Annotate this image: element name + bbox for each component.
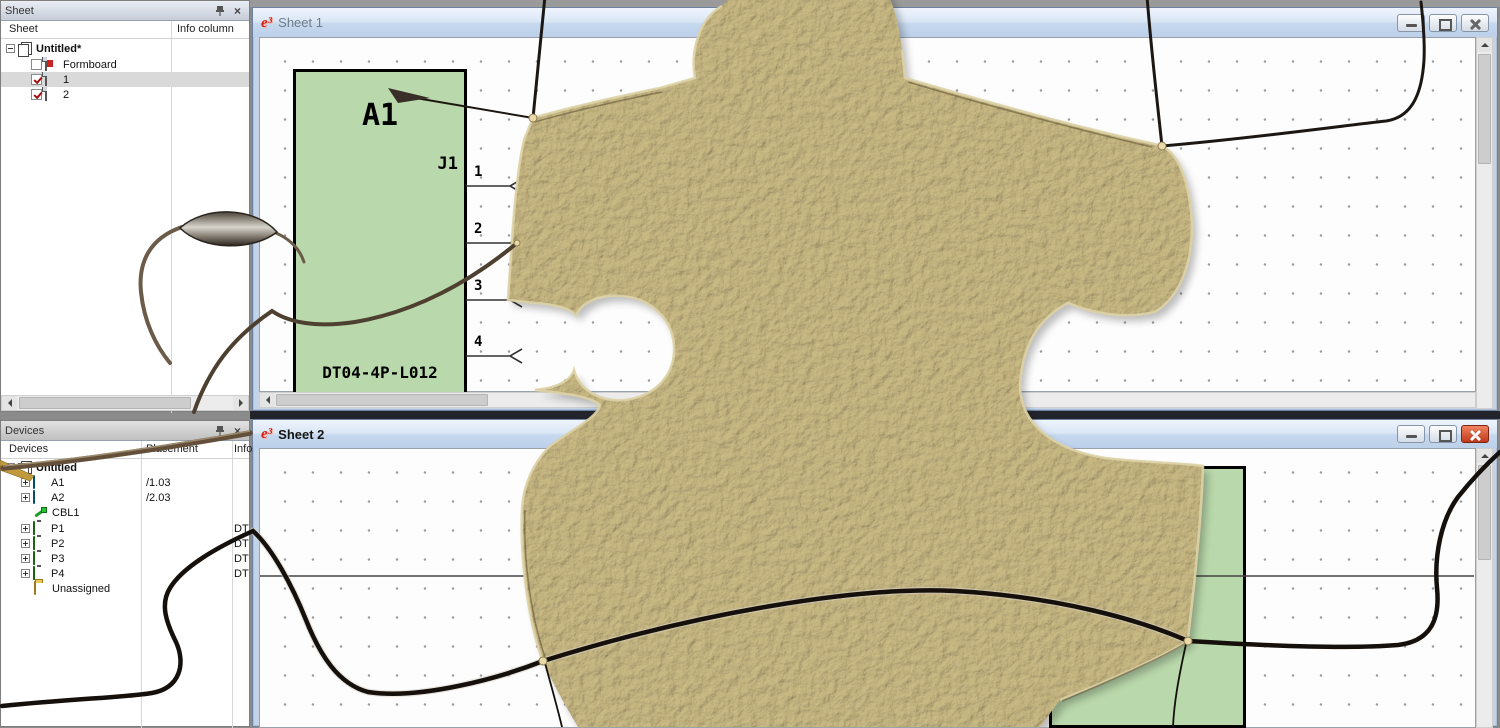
sheet1-hscrollbar[interactable]: [259, 392, 1476, 408]
info-value: DT: [234, 538, 249, 550]
close-icon[interactable]: ×: [230, 424, 245, 437]
app-logo-icon: e³: [261, 17, 272, 29]
tree-item-cable-cbl1[interactable]: CBL1: [1, 505, 249, 520]
sheet2-window[interactable]: e³ Sheet 2 2 3: [252, 419, 1498, 727]
minimize-button[interactable]: [1397, 425, 1425, 443]
sheet1-window[interactable]: e³ Sheet 1 A1 J1 DT04-4P-L012 1 2 3 4: [252, 7, 1498, 411]
pin-number: 2: [474, 221, 482, 237]
sheet-panel-hscrollbar[interactable]: [1, 395, 249, 411]
pin-icon[interactable]: [212, 424, 227, 437]
schematic-block-right[interactable]: [1049, 466, 1246, 728]
sheet1-title: Sheet 1: [278, 15, 323, 30]
restore-button[interactable]: [1429, 14, 1457, 32]
connector-icon: [33, 521, 35, 535]
close-icon[interactable]: ×: [230, 4, 245, 17]
tree-root-untitled[interactable]: Untitled*: [1, 41, 249, 56]
close-button[interactable]: [1461, 425, 1489, 443]
tree-root-untitled[interactable]: Untitled: [1, 460, 249, 475]
device-icon: [33, 490, 35, 504]
folder-label: Unassigned: [52, 583, 110, 595]
tree-item-formboard[interactable]: Formboard: [1, 57, 249, 72]
collapse-icon[interactable]: [6, 44, 15, 53]
connector-label: P2: [51, 538, 64, 550]
tree-item-label: Formboard: [63, 59, 117, 71]
expand-icon[interactable]: [21, 524, 30, 533]
devices-panel-titlebar: Devices ×: [1, 421, 249, 441]
tree-root-label: Untitled*: [36, 43, 81, 55]
pin-number: 3: [474, 278, 482, 294]
column-header[interactable]: Sheet: [9, 23, 38, 35]
info-value: DT: [234, 523, 249, 535]
block-designator: A1: [296, 98, 464, 133]
scroll-thumb[interactable]: [19, 397, 191, 409]
sheet2-canvas[interactable]: [259, 448, 1476, 728]
checkbox-checked[interactable]: [31, 89, 42, 100]
formboard-page-icon: [45, 57, 47, 71]
info-value: DT: [234, 553, 249, 565]
devices-panel-header: Devices Placement Info column: [1, 441, 249, 459]
tree-item-sheet-1[interactable]: 1: [1, 72, 249, 87]
connector-icon: [33, 566, 35, 580]
connector-label: P3: [51, 553, 64, 565]
scroll-up-icon[interactable]: [1477, 38, 1492, 52]
sheet1-vscrollbar[interactable]: [1476, 37, 1493, 409]
connector-label: P1: [51, 523, 64, 535]
pin-number: 2: [1027, 610, 1035, 626]
device-icon: [33, 475, 35, 489]
checkbox-checked[interactable]: [31, 74, 42, 85]
connector-label: P4: [51, 568, 64, 580]
sheet-panel: Sheet × Sheet Info column Untitled* Form…: [0, 0, 250, 412]
devices-panel-title: Devices: [5, 425, 209, 437]
expand-icon[interactable]: [21, 569, 30, 578]
block-connector: J1: [438, 154, 458, 174]
tree-item-connector-p3[interactable]: P3 DT: [1, 551, 249, 566]
sheet2-title: Sheet 2: [278, 427, 324, 442]
collapse-icon[interactable]: [6, 463, 15, 472]
connector-icon: [33, 551, 35, 565]
tree-item-label: 2: [63, 89, 69, 101]
pin-number: 4: [474, 334, 482, 350]
pin-number: 3: [1027, 676, 1035, 692]
scroll-thumb[interactable]: [276, 394, 488, 406]
close-button[interactable]: [1461, 14, 1489, 32]
placement-value: /1.03: [146, 477, 170, 489]
device-label: A1: [51, 477, 64, 489]
device-label: A2: [51, 492, 64, 504]
page-icon: [45, 87, 47, 101]
scroll-left-icon[interactable]: [260, 393, 275, 407]
expand-icon[interactable]: [21, 493, 30, 502]
scroll-left-icon[interactable]: [2, 396, 17, 410]
info-value: DT: [234, 568, 249, 580]
minimize-button[interactable]: [1397, 14, 1425, 32]
scroll-right-icon[interactable]: [233, 396, 248, 410]
tree-item-connector-p1[interactable]: P1 DT: [1, 521, 249, 536]
pin-number: 1: [474, 164, 482, 180]
sheet-panel-title: Sheet: [5, 5, 209, 17]
tree-item-connector-p2[interactable]: P2 DT: [1, 536, 249, 551]
tree-item-unassigned[interactable]: Unassigned: [1, 581, 249, 596]
sheet-panel-titlebar: Sheet ×: [1, 1, 249, 21]
sheet2-vscrollbar[interactable]: [1476, 448, 1493, 728]
sheet2-titlebar[interactable]: e³ Sheet 2: [253, 420, 1497, 448]
folder-icon: [34, 581, 36, 595]
scroll-thumb[interactable]: [1478, 54, 1491, 164]
schematic-block-a1[interactable]: A1 J1 DT04-4P-L012: [293, 69, 467, 399]
tree-root-label: Untitled: [36, 462, 77, 474]
connector-icon: [33, 536, 35, 550]
checkbox-unchecked[interactable]: [31, 59, 42, 70]
column-header[interactable]: Info column: [177, 23, 234, 35]
sheet-panel-header: Sheet Info column: [1, 21, 249, 39]
expand-icon[interactable]: [21, 554, 30, 563]
scroll-up-icon[interactable]: [1477, 449, 1492, 463]
column-header[interactable]: Placement: [146, 443, 198, 455]
block-part-number: DT04-4P-L012: [296, 363, 464, 382]
scroll-thumb[interactable]: [1478, 465, 1491, 560]
column-header[interactable]: Devices: [9, 443, 48, 455]
devices-panel: Devices × Devices Placement Info column …: [0, 420, 250, 727]
page-icon: [45, 72, 47, 86]
expand-icon[interactable]: [21, 478, 30, 487]
app-logo-icon: e³: [261, 428, 272, 440]
tree-item-label: 1: [63, 74, 69, 86]
placement-value: /2.03: [146, 492, 170, 504]
workspace-strip: [250, 0, 1500, 7]
tree-item-device-a2[interactable]: A2 /2.03: [1, 490, 249, 505]
cable-label: CBL1: [52, 507, 80, 519]
expand-icon[interactable]: [21, 539, 30, 548]
sheet1-titlebar[interactable]: e³ Sheet 1: [253, 8, 1497, 37]
window-separator: [250, 411, 1500, 419]
tree-item-device-a1[interactable]: A1 /1.03: [1, 475, 249, 490]
restore-button[interactable]: [1429, 425, 1457, 443]
tree-item-sheet-2[interactable]: 2: [1, 87, 249, 102]
pin-icon[interactable]: [212, 4, 227, 17]
